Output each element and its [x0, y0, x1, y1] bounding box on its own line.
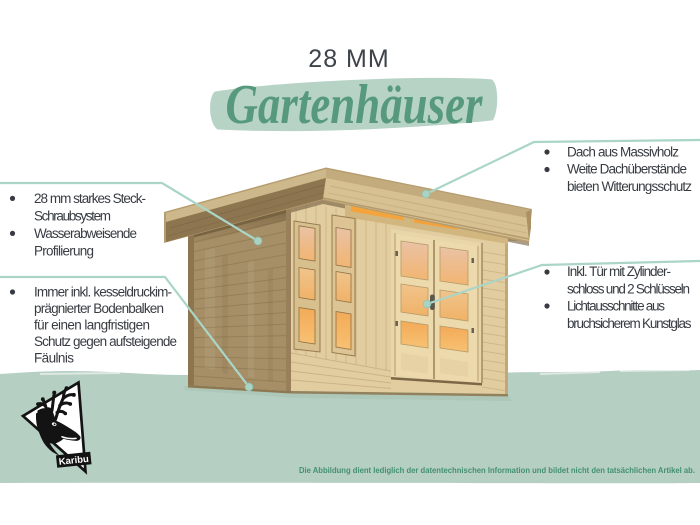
svg-text:Lichtausschnitte aus: Lichtausschnitte aus [567, 299, 665, 314]
svg-text:bieten Witterungsschutz: bieten Witterungsschutz [567, 179, 692, 194]
svg-text:Inkl. Tür mit Zylinder-: Inkl. Tür mit Zylinder- [567, 264, 671, 279]
svg-text:Fäulnis: Fäulnis [34, 351, 74, 366]
svg-text:für einen langfristigen: für einen langfristigen [34, 318, 150, 333]
svg-text:Die Abbildung dient lediglich: Die Abbildung dient lediglich der datent… [299, 466, 695, 475]
svg-text:28 MM: 28 MM [308, 45, 389, 73]
svg-text:prägnierter Bodenbalken: prägnierter Bodenbalken [34, 301, 164, 316]
svg-text:28 mm starkes Steck-: 28 mm starkes Steck- [34, 191, 146, 206]
svg-text:Gartenhäuser: Gartenhäuser [226, 74, 484, 136]
svg-text:Profilierung: Profilierung [34, 244, 94, 259]
svg-text:Weite Dachüberstände: Weite Dachüberstände [567, 162, 687, 177]
svg-text:Immer inkl. kesseldruckim-: Immer inkl. kesseldruckim- [34, 285, 172, 300]
svg-text:Schutz gegen aufsteigende: Schutz gegen aufsteigende [34, 334, 177, 349]
svg-text:schloss und 2 Schlüsseln: schloss und 2 Schlüsseln [567, 282, 690, 297]
svg-text:Schraubsystem: Schraubsystem [34, 209, 111, 224]
svg-text:Dach aus Massivholz: Dach aus Massivholz [567, 144, 679, 159]
svg-text:bruchsicherem Kunstglas: bruchsicherem Kunstglas [567, 316, 692, 331]
svg-text:Wasserabweisende: Wasserabweisende [34, 226, 137, 241]
